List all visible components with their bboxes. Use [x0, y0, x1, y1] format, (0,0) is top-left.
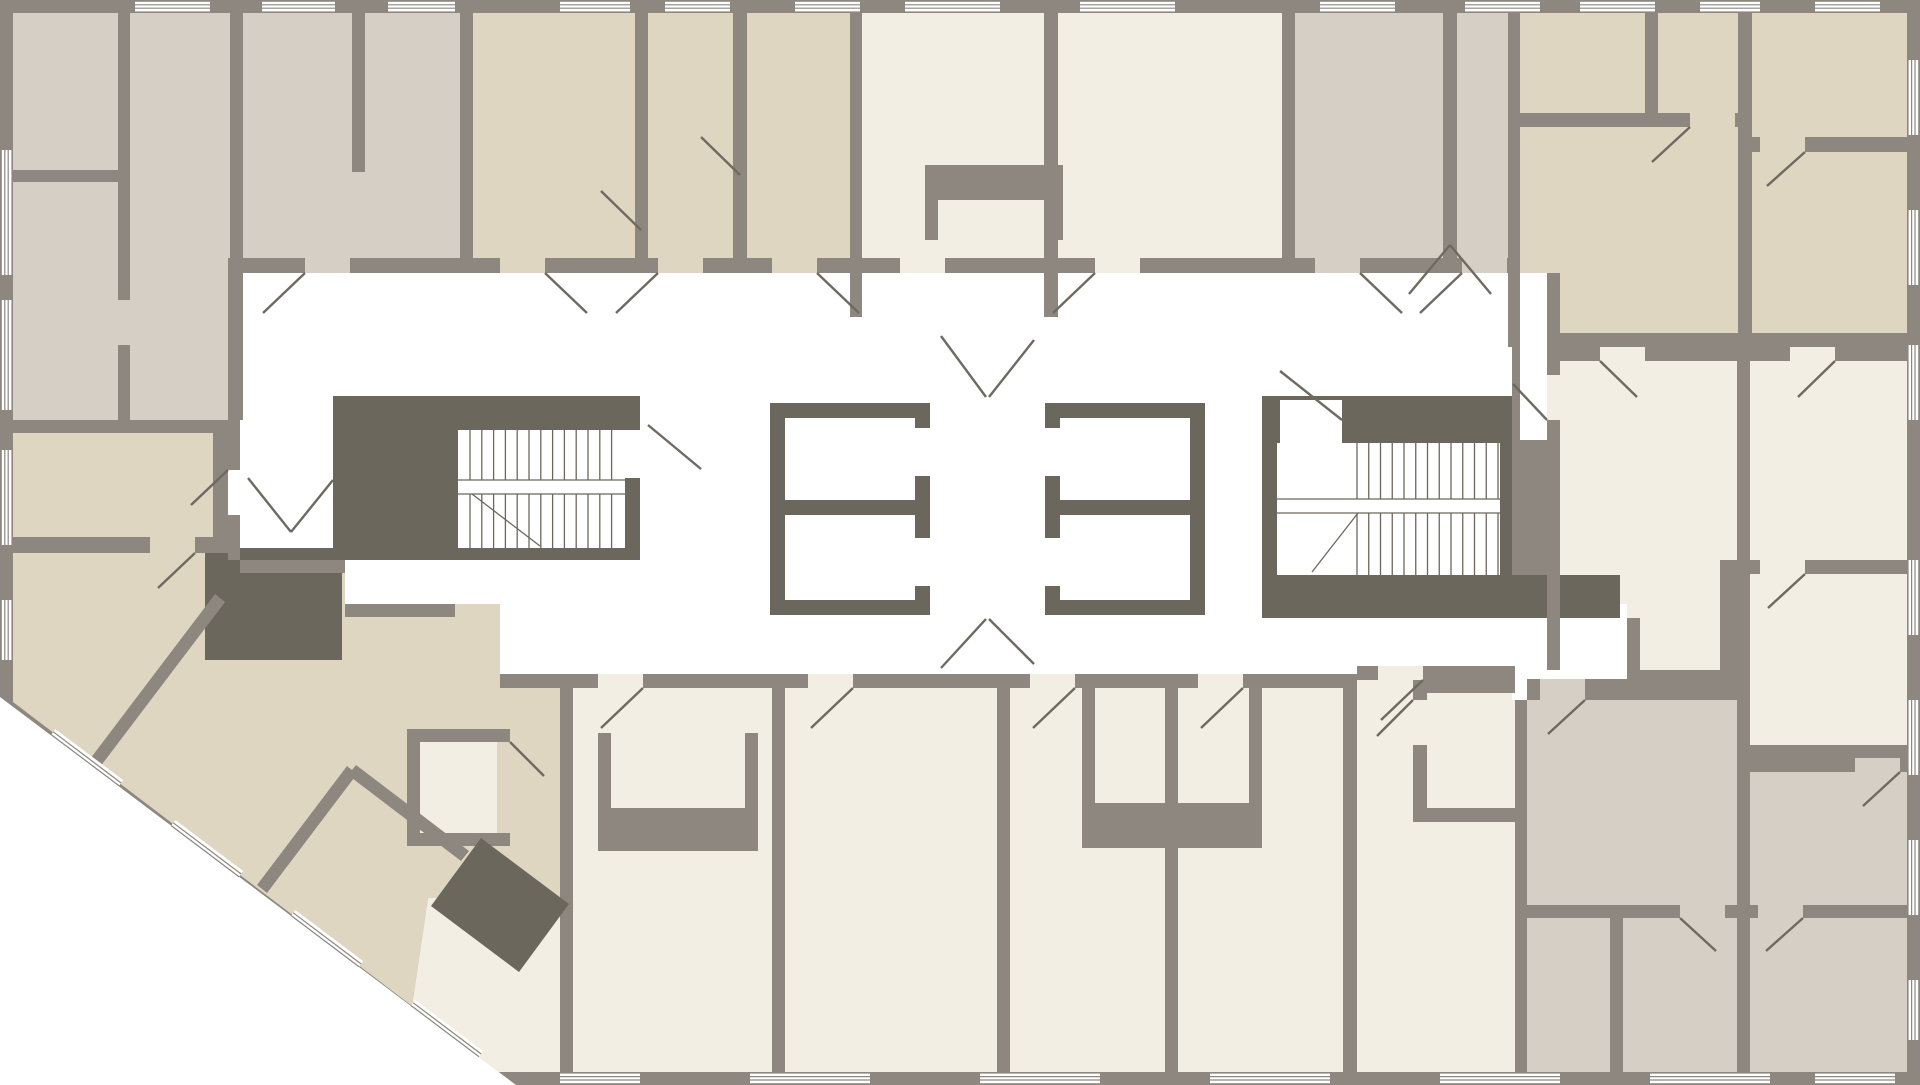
wall — [560, 688, 573, 1072]
wall — [118, 13, 130, 170]
staircase — [1277, 443, 1500, 575]
window-glass — [560, 2, 630, 12]
door-opening — [1462, 258, 1507, 273]
window — [1909, 560, 1919, 635]
window-glass — [1580, 2, 1655, 12]
door-opening — [1790, 347, 1835, 361]
elevator-cab — [785, 418, 915, 500]
wall — [13, 170, 80, 182]
floor-plan — [0, 0, 1920, 1085]
window-glass — [262, 2, 335, 12]
wall — [407, 729, 510, 742]
door-opening — [1030, 674, 1075, 688]
window — [2, 600, 12, 660]
window-glass — [1909, 560, 1919, 635]
wall — [352, 13, 365, 172]
window — [1440, 1074, 1560, 1084]
door-opening — [1855, 758, 1900, 772]
room — [1752, 13, 1907, 137]
room — [1457, 13, 1508, 258]
window — [1815, 1074, 1895, 1084]
window-glass — [1909, 210, 1919, 285]
window — [1909, 980, 1919, 1040]
door-opening — [808, 674, 853, 688]
window-glass — [2, 600, 12, 660]
room — [243, 13, 460, 258]
door-opening — [1690, 113, 1735, 127]
room — [1527, 700, 1737, 905]
stair-core-right — [1262, 575, 1620, 618]
window-glass — [1815, 2, 1880, 12]
door-opening — [305, 258, 350, 273]
window-glass — [388, 2, 455, 12]
wall — [1508, 13, 1520, 347]
window — [905, 2, 1000, 12]
wall — [460, 13, 473, 258]
window — [560, 1074, 640, 1084]
wall — [1082, 803, 1262, 848]
window-glass — [665, 2, 730, 12]
door-opening — [1680, 905, 1725, 918]
window-glass — [1650, 1074, 1770, 1084]
window — [1815, 2, 1880, 12]
room — [1750, 361, 1907, 560]
window-glass — [905, 2, 1000, 12]
window — [1650, 1074, 1770, 1084]
door-opening — [1547, 375, 1560, 420]
room — [1295, 13, 1443, 258]
staircase — [458, 430, 625, 548]
door-opening — [658, 258, 703, 273]
window-glass — [1080, 2, 1175, 12]
wall — [925, 200, 938, 240]
window-glass — [750, 1074, 870, 1084]
wall — [635, 13, 648, 230]
door-opening — [1315, 258, 1360, 273]
room — [1750, 772, 1907, 905]
door-opening — [1045, 538, 1060, 586]
wall — [925, 165, 1063, 200]
door-opening — [1600, 347, 1645, 361]
window-glass — [1320, 2, 1395, 12]
window — [1210, 1074, 1330, 1084]
window — [1909, 345, 1919, 420]
elevator-cab — [1060, 418, 1190, 500]
door-opening — [1198, 674, 1243, 688]
door-opening — [915, 538, 930, 586]
wall — [1413, 680, 1515, 693]
room — [1750, 574, 1907, 745]
window — [262, 2, 335, 12]
wall — [1165, 688, 1178, 1072]
wall — [240, 560, 345, 573]
room — [1527, 918, 1610, 1072]
window-glass — [795, 2, 860, 12]
room — [13, 182, 118, 420]
window-glass — [1465, 2, 1540, 12]
window-glass — [1210, 1074, 1330, 1084]
window — [795, 2, 860, 12]
room — [13, 13, 118, 170]
wall — [1443, 13, 1457, 245]
room — [1520, 13, 1738, 113]
door-opening — [1095, 258, 1140, 273]
door-opening — [1758, 905, 1803, 918]
window — [665, 2, 730, 12]
window — [560, 2, 630, 12]
elevator-cab — [785, 515, 915, 600]
window-glass — [560, 1074, 640, 1084]
window-glass — [1909, 840, 1919, 915]
window — [1909, 840, 1919, 915]
wall — [1413, 808, 1515, 822]
window — [1700, 2, 1760, 12]
wall — [745, 733, 758, 808]
wall — [13, 420, 213, 433]
room — [1357, 680, 1515, 1072]
stair-landing — [1277, 499, 1500, 513]
window — [1909, 700, 1919, 775]
door-opening — [1378, 666, 1423, 680]
stair-core-right — [1500, 443, 1512, 575]
wall — [13, 537, 228, 553]
window-glass — [135, 2, 210, 12]
wall — [1082, 688, 1095, 803]
elevator-cab — [1060, 515, 1190, 600]
door-opening — [772, 258, 817, 273]
door-opening — [625, 430, 640, 478]
window — [135, 2, 210, 12]
window-glass — [1909, 345, 1919, 420]
window — [2, 300, 12, 410]
window — [750, 1074, 870, 1084]
door-opening — [500, 258, 545, 273]
window — [1320, 2, 1395, 12]
door-opening — [598, 674, 643, 688]
stair-core-right — [1262, 443, 1277, 575]
window-glass — [2, 300, 12, 410]
window — [1580, 2, 1655, 12]
wall — [1737, 361, 1750, 758]
door-opening — [118, 300, 130, 345]
wall — [1547, 273, 1560, 670]
door-opening — [150, 537, 195, 553]
window-glass — [1909, 60, 1919, 135]
wall — [733, 13, 747, 175]
wall — [1720, 560, 1737, 670]
door-opening — [228, 470, 240, 515]
window — [388, 2, 455, 12]
wall — [1738, 13, 1752, 347]
room — [747, 13, 850, 258]
window — [980, 1074, 1100, 1084]
door-opening — [1045, 428, 1060, 476]
room — [1623, 918, 1737, 1072]
window-glass — [980, 1074, 1100, 1084]
floor-plan-page — [0, 0, 1920, 1085]
window-glass — [1440, 1074, 1560, 1084]
window-glass — [2, 150, 12, 275]
room — [473, 13, 635, 258]
door-opening — [1413, 700, 1427, 745]
door-opening — [455, 604, 500, 617]
door-opening — [1540, 679, 1585, 700]
wall — [1515, 700, 1527, 1072]
wall — [1249, 688, 1262, 803]
wall — [1645, 13, 1658, 113]
wall — [1627, 618, 1640, 679]
wall — [1282, 13, 1295, 258]
door-opening — [900, 258, 945, 273]
wall — [407, 742, 420, 846]
room — [1750, 918, 1907, 1072]
window — [2, 150, 12, 275]
room — [420, 742, 497, 833]
door-opening — [915, 428, 930, 476]
wall — [1610, 918, 1623, 1072]
stair-landing — [458, 480, 625, 494]
room — [130, 13, 230, 420]
window — [1465, 2, 1540, 12]
wall — [213, 433, 228, 553]
window-glass — [2, 450, 12, 545]
wall — [598, 733, 611, 808]
door-opening — [1280, 400, 1342, 443]
wall — [772, 688, 785, 1072]
window — [1909, 60, 1919, 135]
window — [1909, 210, 1919, 285]
room — [785, 688, 997, 1072]
window — [1080, 2, 1175, 12]
window — [2, 450, 12, 545]
wall — [1050, 200, 1063, 240]
window-glass — [1700, 2, 1760, 12]
window-glass — [1909, 700, 1919, 775]
room — [648, 13, 733, 258]
door-opening — [1760, 560, 1805, 574]
door-opening — [1760, 137, 1805, 152]
wall — [997, 688, 1010, 1072]
wall — [598, 808, 758, 851]
window-glass — [1815, 1074, 1895, 1084]
window-glass — [1909, 980, 1919, 1040]
wall — [1343, 679, 1357, 1072]
